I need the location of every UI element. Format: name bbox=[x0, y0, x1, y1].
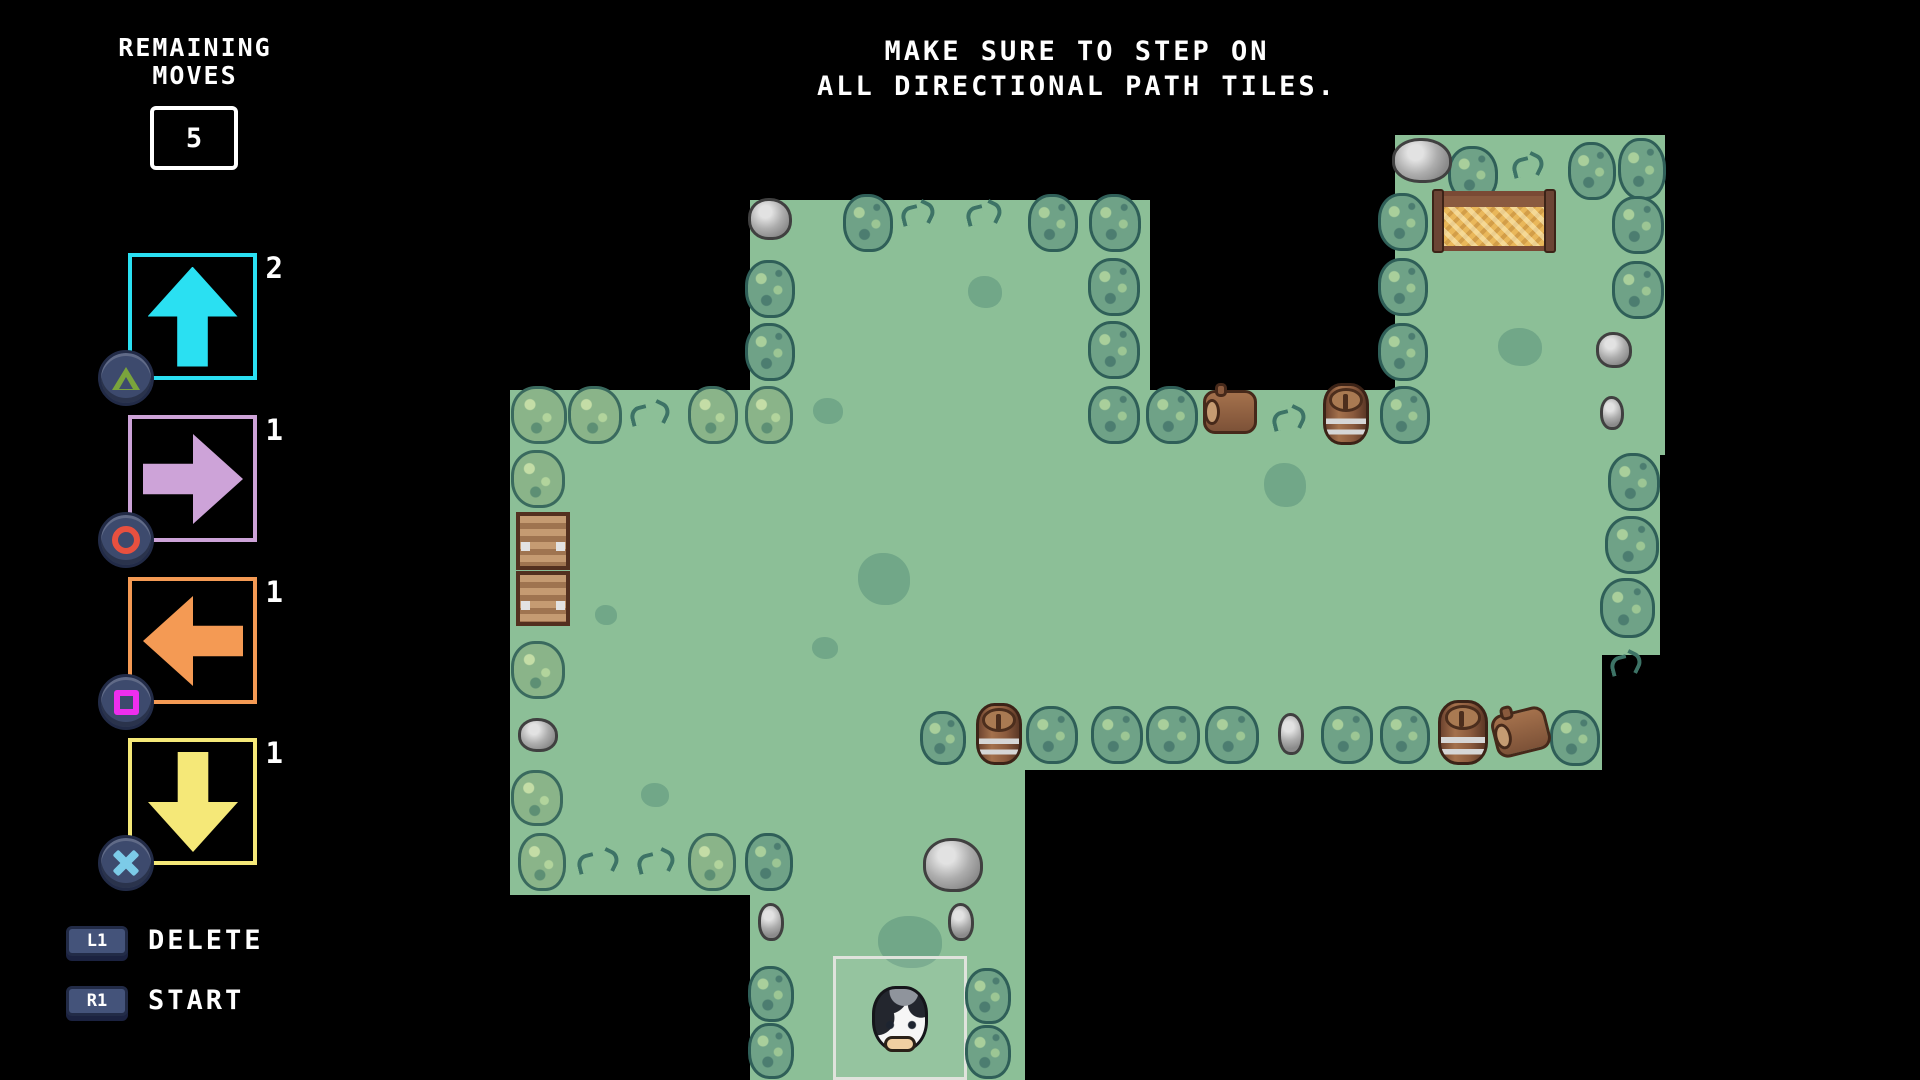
grass-sprout bbox=[628, 398, 672, 434]
bush bbox=[1378, 323, 1428, 381]
bush bbox=[965, 1025, 1011, 1079]
remaining-moves-value: 5 bbox=[186, 123, 202, 154]
right-arrow-icon bbox=[143, 434, 243, 524]
grass-sprout bbox=[575, 846, 621, 884]
grass-sprout bbox=[635, 846, 677, 884]
bush bbox=[1088, 321, 1140, 379]
bush bbox=[511, 641, 565, 699]
bush bbox=[688, 386, 738, 444]
move-up-count: 2 bbox=[266, 251, 283, 285]
bush bbox=[1146, 386, 1198, 444]
barrel bbox=[1323, 383, 1369, 445]
bush bbox=[1568, 142, 1616, 200]
rock bbox=[1392, 138, 1452, 183]
bush bbox=[1605, 516, 1659, 574]
barrel bbox=[976, 703, 1022, 765]
down-arrow-icon bbox=[148, 752, 238, 852]
start-label: START bbox=[148, 985, 244, 1016]
bush bbox=[1146, 706, 1200, 764]
instruction-text: MAKE SURE TO STEP ON ALL DIRECTIONAL PAT… bbox=[537, 34, 1617, 104]
grass-patch bbox=[812, 637, 838, 659]
move-down-count: 1 bbox=[266, 736, 283, 770]
grass-sprout bbox=[899, 198, 937, 232]
rock bbox=[518, 718, 558, 752]
bush bbox=[1028, 194, 1078, 252]
move-left-count: 1 bbox=[266, 575, 283, 609]
move-down-button[interactable]: 1 bbox=[128, 738, 257, 865]
player-character bbox=[872, 986, 928, 1052]
grass-patch bbox=[1498, 328, 1542, 366]
remaining-moves-label: REMAINING MOVES bbox=[55, 34, 335, 90]
r1-shoulder-badge: R1 bbox=[66, 986, 128, 1016]
rock bbox=[748, 198, 792, 240]
instruction-line1: MAKE SURE TO STEP ON bbox=[537, 34, 1617, 69]
bush bbox=[1089, 194, 1141, 252]
bush bbox=[965, 968, 1011, 1024]
up-arrow-icon bbox=[148, 267, 238, 367]
delete-action[interactable]: L1DELETE bbox=[66, 925, 264, 956]
rock bbox=[1600, 396, 1624, 430]
move-right-count: 1 bbox=[266, 413, 283, 447]
rock bbox=[948, 903, 974, 941]
bush bbox=[843, 194, 893, 252]
grass-patch bbox=[595, 605, 617, 625]
bush bbox=[1550, 710, 1600, 766]
bush bbox=[1380, 706, 1430, 764]
delete-label: DELETE bbox=[148, 925, 264, 956]
bush bbox=[568, 386, 622, 444]
grass-patch bbox=[858, 553, 910, 605]
bush bbox=[748, 966, 794, 1022]
remaining-moves-label-line2: MOVES bbox=[55, 62, 335, 90]
remaining-moves-label-line1: REMAINING bbox=[55, 34, 335, 62]
bush bbox=[745, 260, 795, 318]
ps-circle-button-icon bbox=[98, 512, 154, 568]
bush bbox=[1026, 706, 1078, 764]
bush bbox=[920, 711, 966, 765]
bush bbox=[518, 833, 566, 891]
ps-triangle-button-icon bbox=[98, 350, 154, 406]
bush bbox=[1088, 386, 1140, 444]
grass-patch bbox=[641, 783, 669, 807]
bush bbox=[1600, 578, 1655, 638]
bush bbox=[748, 1023, 794, 1079]
remaining-moves-counter: 5 bbox=[150, 106, 238, 170]
rock bbox=[1596, 332, 1632, 368]
move-right-button[interactable]: 1 bbox=[128, 415, 257, 542]
grass-sprout bbox=[1270, 403, 1308, 437]
ps-cross-button-icon bbox=[98, 835, 154, 891]
instruction-line2: ALL DIRECTIONAL PATH TILES. bbox=[537, 69, 1617, 104]
crate bbox=[516, 512, 570, 570]
crate bbox=[516, 571, 570, 626]
grass-patch bbox=[968, 276, 1002, 308]
left-arrow-icon bbox=[143, 596, 243, 686]
move-left-button[interactable]: 1 bbox=[128, 577, 257, 704]
bush bbox=[511, 450, 565, 508]
bush bbox=[688, 833, 736, 891]
hay-trough bbox=[1435, 191, 1553, 251]
bush bbox=[1378, 193, 1428, 251]
rock bbox=[923, 838, 983, 892]
l1-shoulder-badge: L1 bbox=[66, 926, 128, 956]
ps-square-button-icon bbox=[98, 674, 154, 730]
grass-sprout bbox=[1510, 150, 1546, 184]
bush bbox=[1608, 453, 1660, 511]
bush bbox=[1612, 196, 1664, 254]
bush bbox=[1380, 386, 1430, 444]
move-up-button[interactable]: 2 bbox=[128, 253, 257, 380]
bush bbox=[511, 386, 567, 444]
bush bbox=[1205, 706, 1259, 764]
bush bbox=[511, 770, 563, 826]
bush bbox=[745, 323, 795, 381]
grass-sprout bbox=[1608, 648, 1644, 684]
grass-region bbox=[510, 390, 1660, 655]
bush bbox=[1321, 706, 1373, 764]
bush bbox=[1618, 138, 1666, 200]
grass-sprout bbox=[964, 198, 1004, 234]
bush bbox=[745, 386, 793, 444]
bush bbox=[1088, 258, 1140, 316]
rock bbox=[758, 903, 784, 941]
grass-patch bbox=[1264, 463, 1306, 507]
grass-patch bbox=[813, 398, 843, 424]
bush bbox=[1378, 258, 1428, 316]
rock bbox=[1278, 713, 1304, 755]
barrel bbox=[1438, 700, 1488, 765]
start-action[interactable]: R1START bbox=[66, 985, 244, 1016]
game-map bbox=[0, 0, 1920, 1080]
log bbox=[1203, 390, 1257, 434]
bush bbox=[1612, 261, 1664, 319]
bush bbox=[1091, 706, 1143, 764]
bush bbox=[745, 833, 793, 891]
